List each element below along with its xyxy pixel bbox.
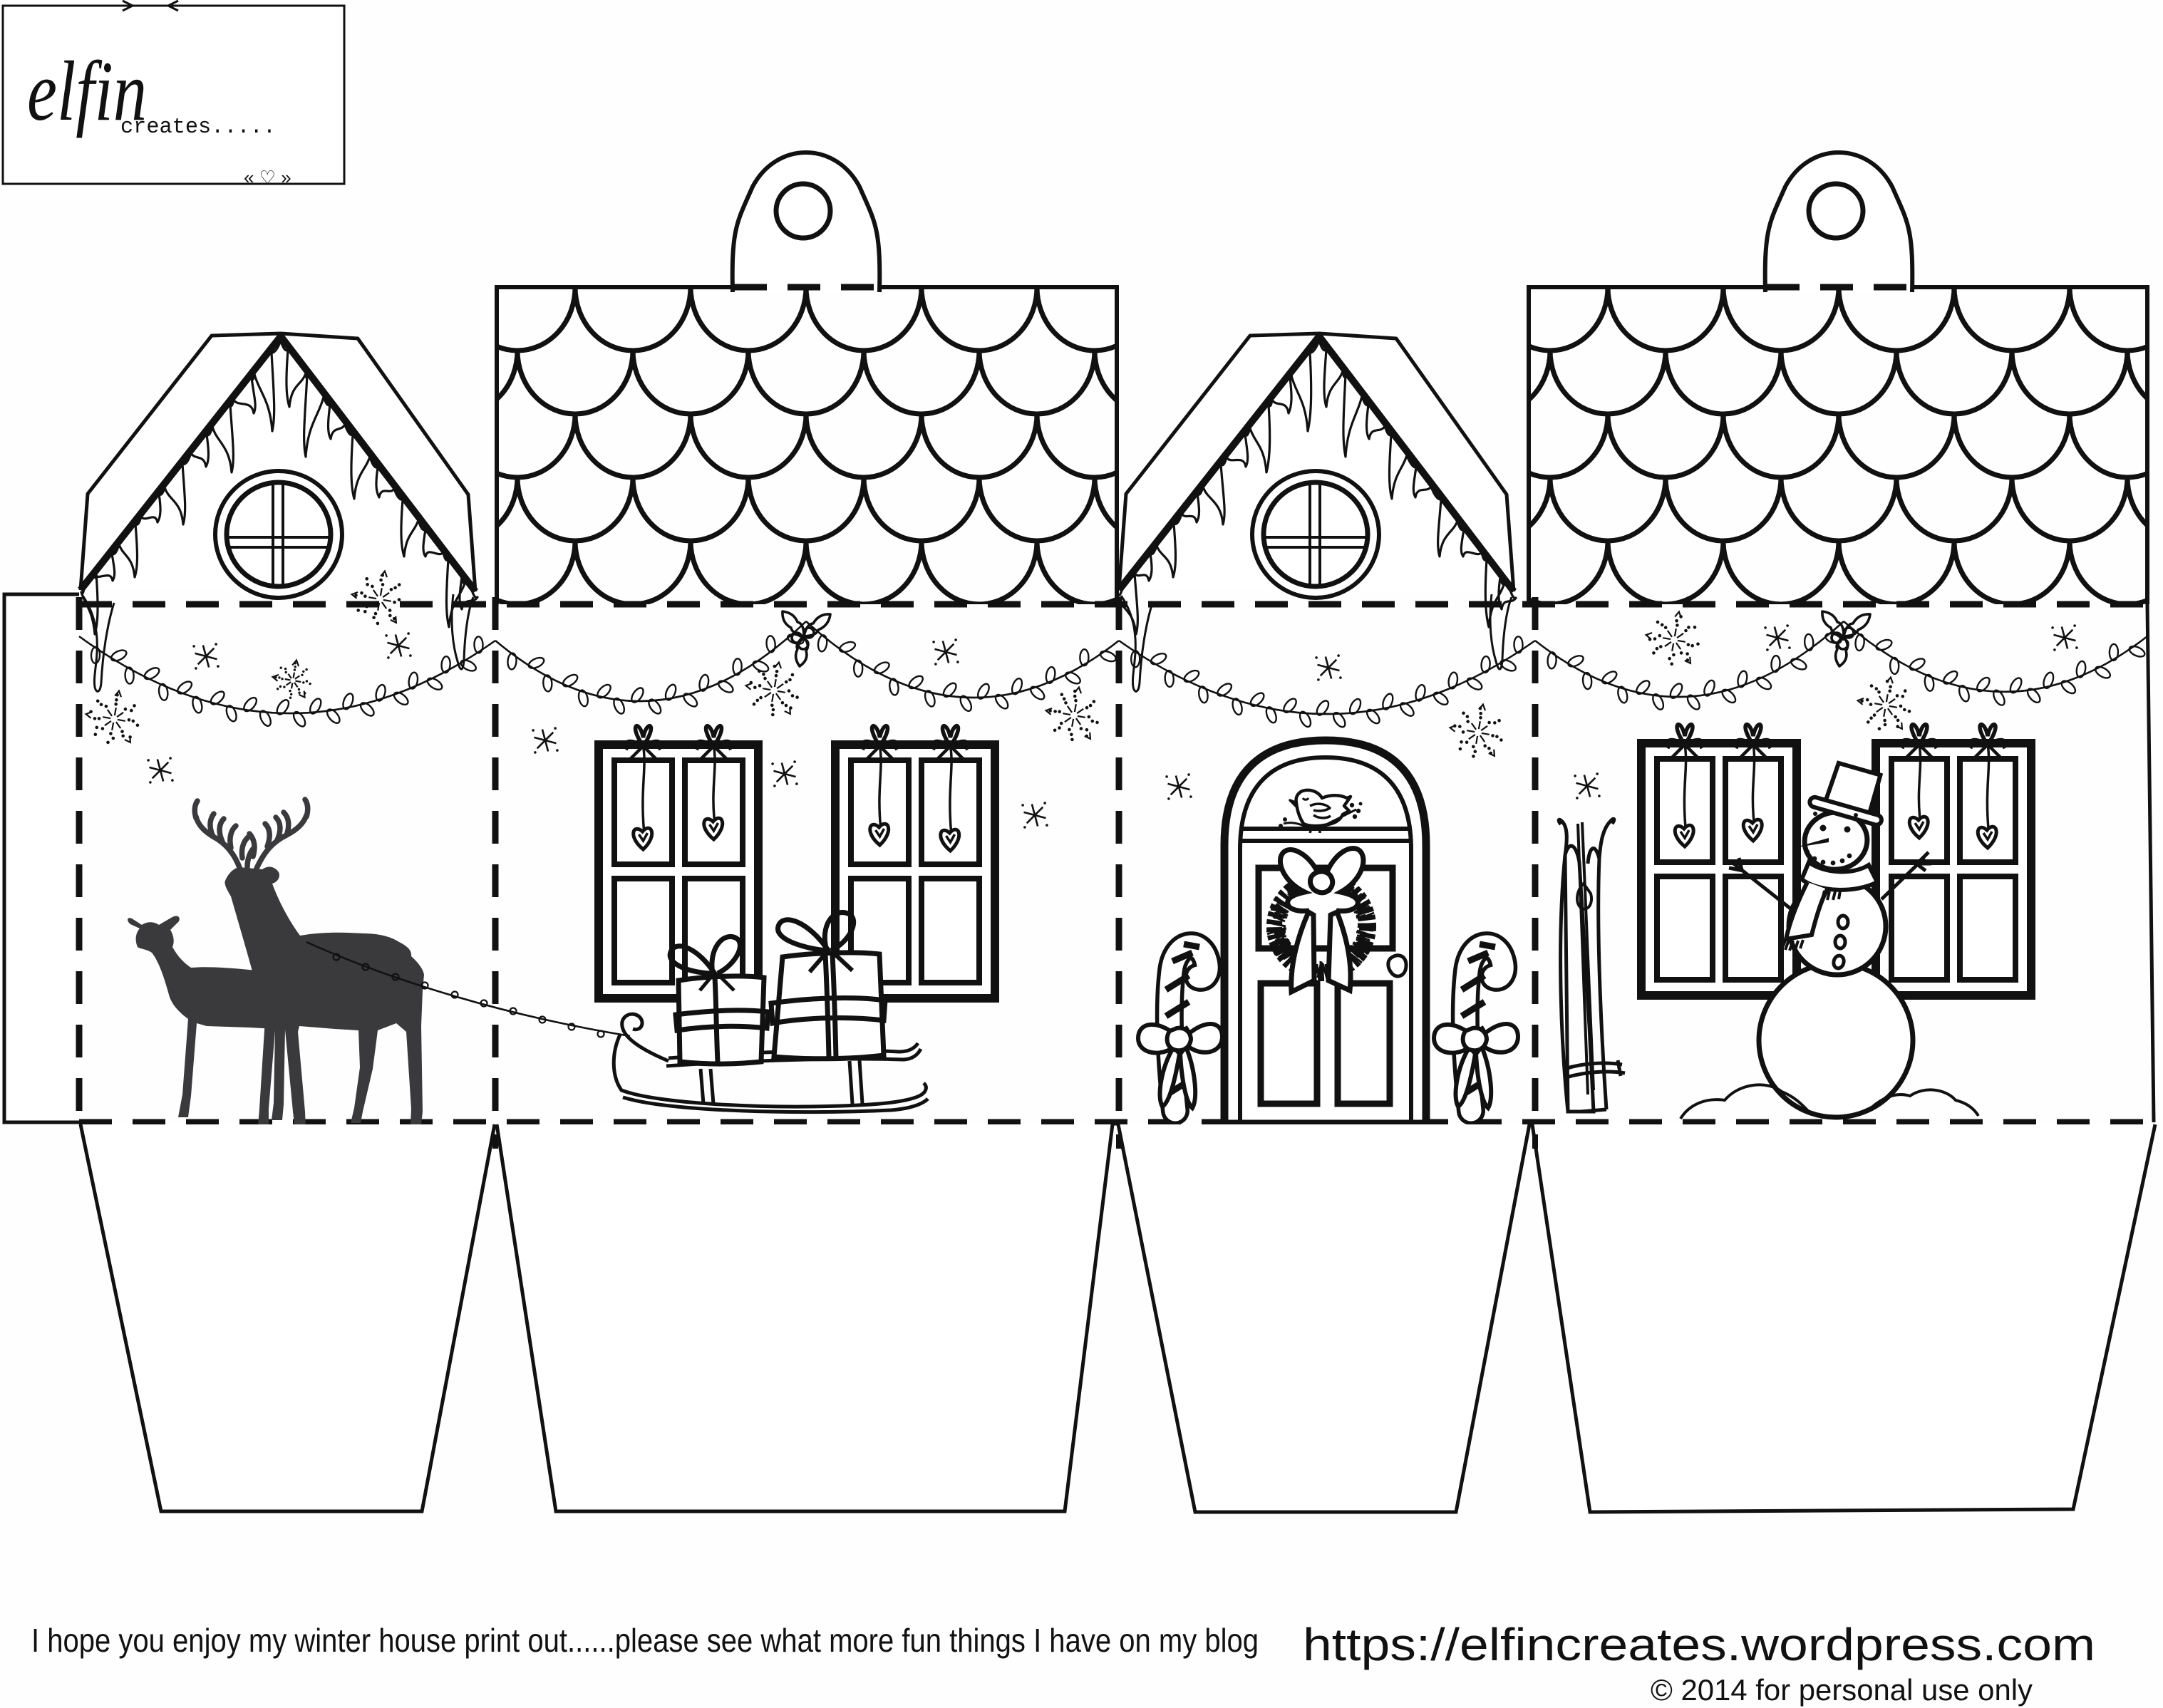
svg-text:creates.....: creates..... xyxy=(120,115,276,140)
svg-text:I hope you enjoy my winter hou: I hope you enjoy my winter house print o… xyxy=(31,1622,1259,1659)
svg-text:© 2014 for personal use only: © 2014 for personal use only xyxy=(1651,1673,2033,1707)
svg-text:https://elfincreates.wordpress: https://elfincreates.wordpress.com xyxy=(1303,1619,2095,1670)
svg-text:« ♡ »: « ♡ » xyxy=(244,167,291,188)
